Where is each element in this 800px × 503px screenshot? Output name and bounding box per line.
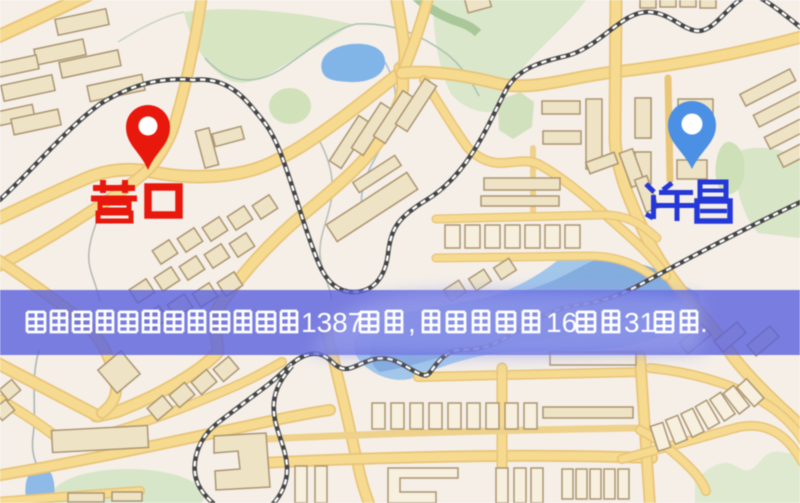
svg-text:31: 31	[624, 307, 655, 338]
svg-text:.: .	[700, 307, 708, 338]
svg-text:16: 16	[546, 307, 577, 338]
svg-text:,: ,	[408, 307, 416, 338]
svg-text:1387: 1387	[301, 307, 363, 338]
